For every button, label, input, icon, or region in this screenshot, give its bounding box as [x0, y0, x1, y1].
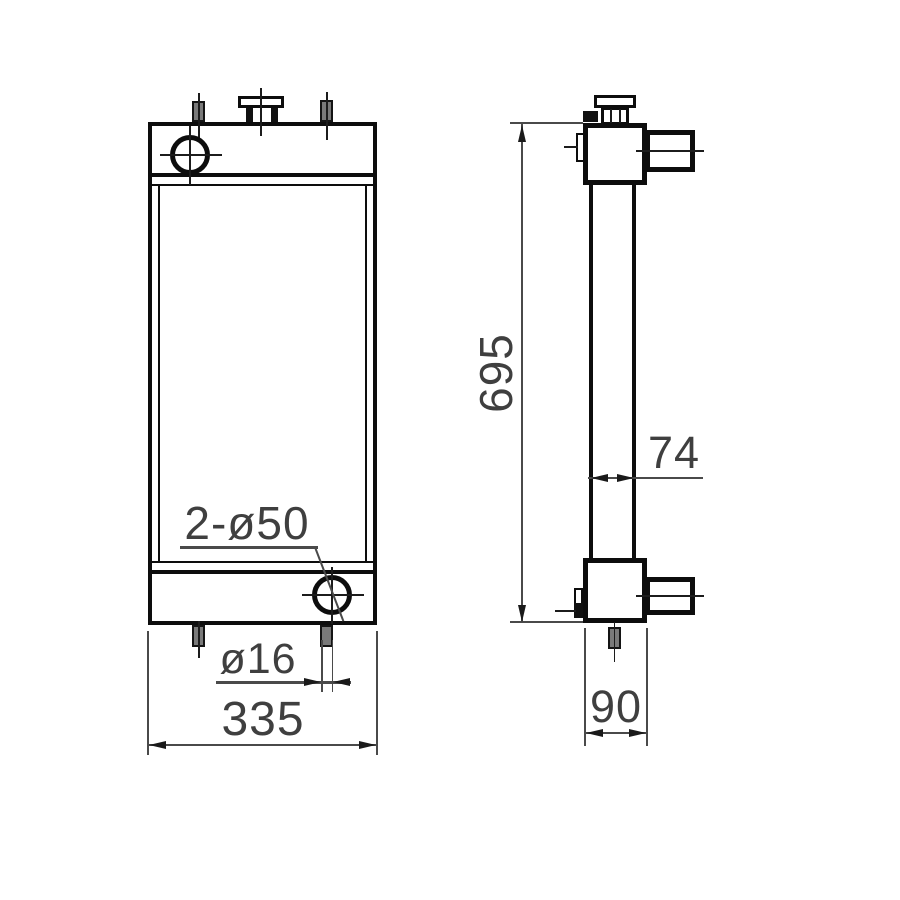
side-bottom-tab-centerline	[555, 610, 576, 612]
side-bottom-pin-centerline	[614, 622, 616, 662]
side-top-tab	[576, 133, 585, 162]
side-core-left-line	[589, 185, 593, 558]
core-thickness-arrow-left	[591, 474, 608, 482]
core-thickness-arrow-right	[617, 474, 634, 482]
side-top-pipe-centerline	[636, 150, 704, 152]
side-bottom-pipe-centerline	[636, 595, 704, 597]
side-bottom-tank	[583, 558, 647, 623]
side-top-tab-centerline	[564, 146, 578, 148]
tank-depth-label: 90	[586, 684, 646, 729]
depth-ext-right	[646, 628, 648, 746]
core-thickness-label: 74	[645, 430, 703, 475]
drawing-canvas: 2-ø50 ø16 335	[0, 0, 900, 900]
side-top-bracket	[583, 111, 598, 122]
side-filler-cap-neck	[601, 107, 629, 125]
overall-height-label: 695	[473, 303, 519, 443]
side-core-right-line	[632, 185, 636, 558]
height-arrow-bottom	[518, 605, 526, 622]
side-top-tank	[583, 123, 647, 185]
height-arrow-top	[518, 125, 526, 142]
side-filler-cap-neck-line-1	[610, 109, 612, 123]
side-view: 695 74 90	[0, 0, 900, 900]
side-filler-cap-neck-line-2	[619, 109, 621, 123]
